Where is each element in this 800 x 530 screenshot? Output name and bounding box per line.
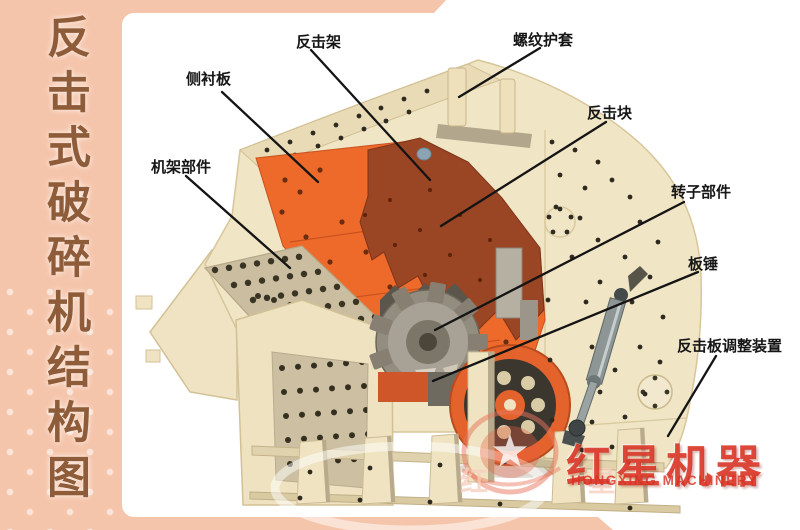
flange-circle (638, 375, 672, 409)
label-adjust-device: 反击板调整装置 (677, 335, 782, 356)
thread-sleeve-post (448, 68, 466, 126)
thread-sleeve-post (500, 79, 515, 133)
label-thread-sleeve: 螺纹护套 (513, 29, 573, 50)
brand-name-en: HONGXING MACHINERY (571, 473, 758, 488)
label-blow-bar: 板锤 (688, 253, 718, 274)
interior-part (496, 248, 522, 318)
label-side-liner: 侧衬板 (186, 68, 231, 89)
wedge-tab (146, 350, 160, 362)
label-impact-block: 反击块 (587, 102, 632, 123)
blow-bar-block (378, 372, 428, 402)
page: 反击式破碎机结构图 (0, 0, 800, 530)
label-rotor-part: 转子部件 (671, 181, 731, 202)
label-impact-frame: 反击架 (296, 31, 341, 52)
label-frame-part: 机架部件 (151, 156, 211, 177)
wedge-tab (136, 296, 152, 309)
interior-part (520, 300, 538, 340)
porthole (417, 148, 431, 160)
